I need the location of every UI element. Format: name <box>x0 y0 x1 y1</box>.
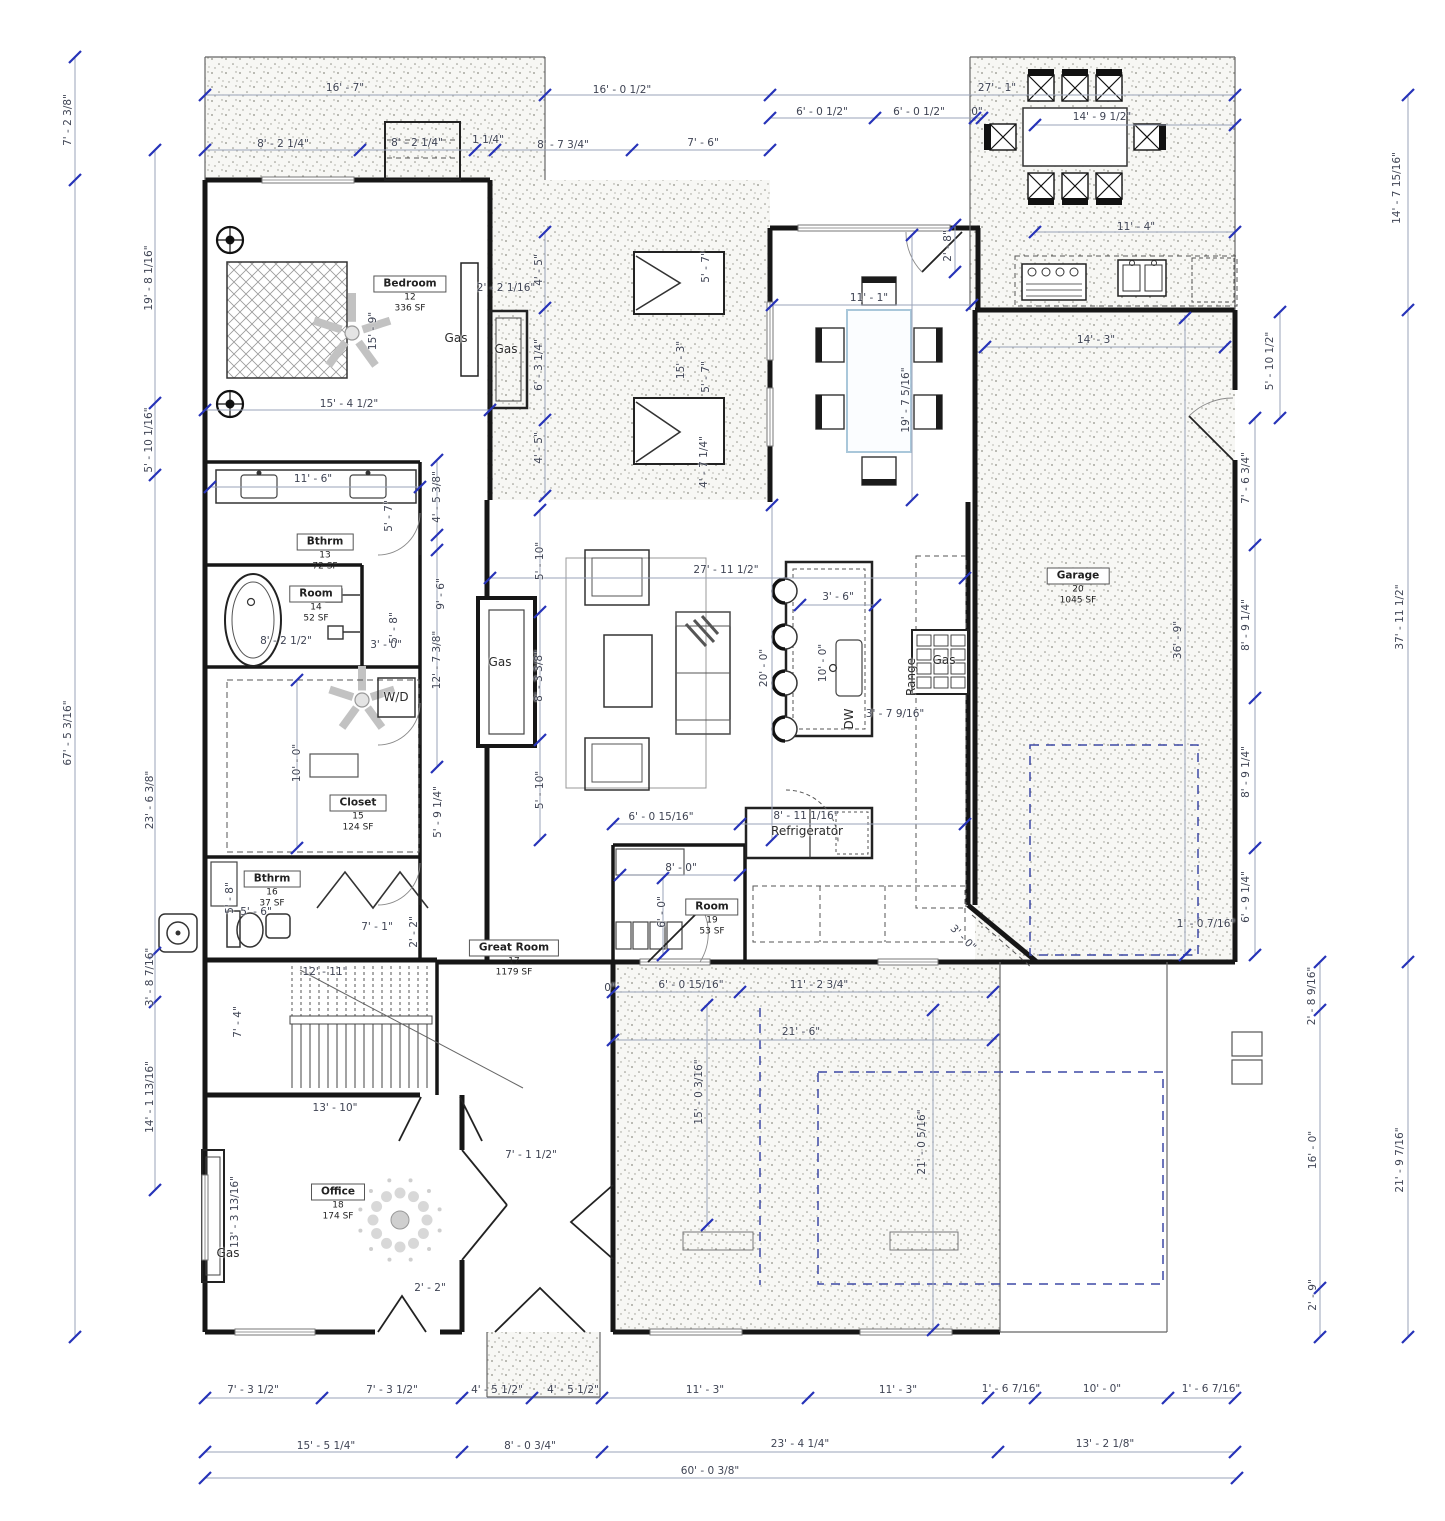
dimension-label: 9' - 6" <box>435 578 447 610</box>
dimension-label: 5' - 10" <box>534 771 546 809</box>
room-number: 13 <box>297 551 354 562</box>
dimension-label: 2' - 8 9/16" <box>1306 967 1318 1025</box>
room-name: Closet <box>330 795 387 812</box>
dimension-label: 1' - 6 7/16" <box>1182 1383 1240 1395</box>
room-area: 37 SF <box>244 899 301 910</box>
dimension-label: 13' - 10" <box>313 1102 358 1114</box>
room-name: Garage <box>1047 568 1110 585</box>
dimension-label: 2' - 8" <box>942 230 954 262</box>
dimension-label: 8' - 2 1/4" <box>391 137 443 149</box>
dimension-label: 3' - 6" <box>822 591 854 603</box>
dimension-label: 14' - 7 15/16" <box>1391 152 1403 224</box>
dimension-label: 21' - 9 7/16" <box>1394 1127 1406 1192</box>
dimension-label: 60' - 0 3/8" <box>681 1465 739 1477</box>
room-label-bthrm: Bthrm1637 SF <box>244 867 301 910</box>
room-area: 1045 SF <box>1047 596 1110 607</box>
annotation-label: Gas <box>495 342 518 356</box>
room-area: 124 SF <box>330 823 387 834</box>
dimension-label: 16' - 7" <box>326 82 364 94</box>
dimension-label: 4' - 7 1/4" <box>698 436 710 488</box>
room-name: Office <box>311 1184 365 1201</box>
dimension-label: 7' - 3 1/2" <box>366 1384 418 1396</box>
dimension-label: 15' - 9" <box>367 312 379 350</box>
room-label-room: Room1953 SF <box>685 895 738 938</box>
dimension-label: 1' - 0 7/16" <box>1177 918 1235 930</box>
annotation-label: DW <box>842 708 856 729</box>
dimension-label: 5' - 7" <box>700 361 712 393</box>
dimension-label: 7' - 6 3/4" <box>1240 452 1252 504</box>
annotation-label: W/D <box>383 690 408 704</box>
dimension-label: 2' - 2 1/16" <box>477 282 535 294</box>
dimension-label: 5' - 7" <box>700 251 712 283</box>
dimension-label: 8' - 2 1/4" <box>257 138 309 150</box>
dimension-label: 5' - 7" <box>383 500 395 532</box>
dimension-label: 5' - 10" <box>534 542 546 580</box>
dimension-label: 14' - 1 13/16" <box>144 1061 156 1133</box>
dimension-label: 13' - 3 13/16" <box>229 1176 241 1248</box>
dimension-label: 14' - 9 1/2" <box>1073 111 1131 123</box>
dimension-label: 8' - 9 1/4" <box>1240 746 1252 798</box>
dimension-label: 8' - 7 3/4" <box>537 139 589 151</box>
room-number: 14 <box>289 603 342 614</box>
room-area: 336 SF <box>373 304 446 315</box>
floor-plan-canvas: 16' - 7"16' - 0 1/2"27' - 1"8' - 2 1/4"8… <box>0 0 1445 1521</box>
dimension-label: 6' - 0 15/16" <box>658 979 723 991</box>
room-area: 1179 SF <box>469 968 559 979</box>
dimension-label: 23' - 6 3/8" <box>144 771 156 829</box>
room-name: Room <box>685 899 738 916</box>
room-area: 53 SF <box>685 927 738 938</box>
dimension-label: 4' - 5 1/2" <box>547 1384 599 1396</box>
dimension-label: 12' - 11" <box>303 966 348 978</box>
dimension-label: 11' - 3" <box>879 1384 917 1396</box>
dimension-label: 7' - 1" <box>361 921 393 933</box>
dimension-label: 37' - 11 1/2" <box>1394 584 1406 649</box>
room-number: 12 <box>373 293 446 304</box>
annotation-label: Gas <box>933 653 956 667</box>
room-name: Bthrm <box>297 534 354 551</box>
dimension-label: 16' - 0 1/2" <box>593 84 651 96</box>
annotation-label: Gas <box>445 331 468 345</box>
room-number: 16 <box>244 888 301 899</box>
dimension-label: 6' - 3 1/4" <box>533 339 545 391</box>
dimension-label: 5' - 10 1/16" <box>143 407 155 472</box>
dimension-label: 7' - 6" <box>687 137 719 149</box>
dimension-label: 3' - 8 7/16" <box>144 948 156 1006</box>
dimension-label: 20' - 0" <box>758 649 770 687</box>
dimension-label: 2' - 2" <box>408 916 420 948</box>
dimension-label: 10' - 0" <box>817 644 829 682</box>
room-label-bthrm: Bthrm1372 SF <box>297 530 354 573</box>
dimension-label: 5' - 9 1/4" <box>432 786 444 838</box>
dimension-label: 7' - 3 1/2" <box>227 1384 279 1396</box>
dimension-label: 11' - 2 3/4" <box>790 979 848 991</box>
dimension-label: 0" <box>971 106 983 118</box>
dimension-label: 10' - 0" <box>1083 1383 1121 1395</box>
dimension-label: 27' - 1" <box>978 82 1016 94</box>
dimension-label: 5' - 8" <box>224 882 236 914</box>
dimension-label: 5' - 8" <box>388 612 400 644</box>
annotation-label: Gas <box>217 1246 240 1260</box>
dimension-label: 1 1/4" <box>472 134 504 146</box>
dimension-label: 19' - 8 1/16" <box>143 245 155 310</box>
dimension-label: 19' - 7 5/16" <box>900 367 912 432</box>
dimension-label: 21' - 6" <box>782 1026 820 1038</box>
room-number: 15 <box>330 812 387 823</box>
dimension-label: 3' - 7 9/16" <box>866 708 924 720</box>
text-labels-layer: 16' - 7"16' - 0 1/2"27' - 1"8' - 2 1/4"8… <box>0 0 1445 1521</box>
dimension-label: 8' - 11 1/16" <box>773 810 838 822</box>
dimension-label: 6' - 0 1/2" <box>796 106 848 118</box>
dimension-label: 4' - 5 3/8" <box>431 471 443 523</box>
dimension-label: 8' - 9 1/4" <box>1240 599 1252 651</box>
dimension-label: 11' - 4" <box>1117 221 1155 233</box>
room-name: Room <box>289 586 342 603</box>
dimension-label: 4' - 5" <box>533 432 545 464</box>
dimension-label: 15' - 3" <box>675 341 687 379</box>
dimension-label: 11' - 1" <box>850 292 888 304</box>
dimension-label: 4' - 5 1/2" <box>471 1384 523 1396</box>
room-label-great-room: Great Room171179 SF <box>469 936 559 979</box>
dimension-label: 7' - 2 3/8" <box>62 94 74 146</box>
room-name: Great Room <box>469 940 559 957</box>
room-number: 20 <box>1047 585 1110 596</box>
dimension-label: 15' - 4 1/2" <box>320 398 378 410</box>
dimension-label: 0" <box>604 982 616 994</box>
dimension-label: 21' - 0 5/16" <box>916 1109 928 1174</box>
dimension-label: 3' - 0" <box>948 923 979 954</box>
dimension-label: 13' - 2 1/8" <box>1076 1438 1134 1450</box>
room-area: 72 SF <box>297 562 354 573</box>
dimension-label: 5' - 10 1/2" <box>1264 332 1276 390</box>
dimension-label: 10' - 0" <box>291 744 303 782</box>
dimension-label: 6' - 0" <box>656 896 668 928</box>
room-number: 18 <box>311 1201 365 1212</box>
room-label-closet: Closet15124 SF <box>330 791 387 834</box>
annotation-label: Refrigerator <box>771 824 843 838</box>
dimension-label: 6' - 0 15/16" <box>628 811 693 823</box>
room-name: Bedroom <box>373 276 446 293</box>
room-number: 19 <box>685 916 738 927</box>
room-label-bedroom: Bedroom12336 SF <box>373 272 446 315</box>
dimension-label: 7' - 4" <box>232 1006 244 1038</box>
dimension-label: 15' - 5 1/4" <box>297 1440 355 1452</box>
dimension-label: 4' - 5" <box>533 254 545 286</box>
room-number: 17 <box>469 957 559 968</box>
dimension-label: 7' - 1 1/2" <box>505 1149 557 1161</box>
room-name: Bthrm <box>244 871 301 888</box>
dimension-label: 2' - 2" <box>414 1282 446 1294</box>
dimension-label: 16' - 0" <box>1307 1131 1319 1169</box>
dimension-label: 11' - 6" <box>294 473 332 485</box>
dimension-label: 67' - 5 3/16" <box>62 700 74 765</box>
dimension-label: 8' - 3 3/8" <box>533 650 545 702</box>
dimension-label: 12' - 7 3/8" <box>431 631 443 689</box>
annotation-label: Gas <box>489 655 512 669</box>
dimension-label: 6' - 9 1/4" <box>1240 871 1252 923</box>
room-label-room: Room1452 SF <box>289 582 342 625</box>
dimension-label: 6' - 0 1/2" <box>893 106 945 118</box>
dimension-label: 2' - 9" <box>1307 1279 1319 1311</box>
room-area: 174 SF <box>311 1212 365 1223</box>
dimension-label: 8' - 0" <box>665 862 697 874</box>
annotation-label: Range <box>904 658 918 696</box>
dimension-label: 1' - 6 7/16" <box>982 1383 1040 1395</box>
dimension-label: 11' - 3" <box>686 1384 724 1396</box>
dimension-label: 36' - 9" <box>1172 621 1184 659</box>
room-label-office: Office18174 SF <box>311 1180 365 1223</box>
room-label-garage: Garage201045 SF <box>1047 564 1110 607</box>
dimension-label: 8' - 2 1/2" <box>260 635 312 647</box>
room-area: 52 SF <box>289 614 342 625</box>
dimension-label: 14' - 3" <box>1077 334 1115 346</box>
dimension-label: 8' - 0 3/4" <box>504 1440 556 1452</box>
dimension-label: 15' - 0 3/16" <box>693 1059 705 1124</box>
dimension-label: 23' - 4 1/4" <box>771 1438 829 1450</box>
dimension-label: 27' - 11 1/2" <box>693 564 758 576</box>
